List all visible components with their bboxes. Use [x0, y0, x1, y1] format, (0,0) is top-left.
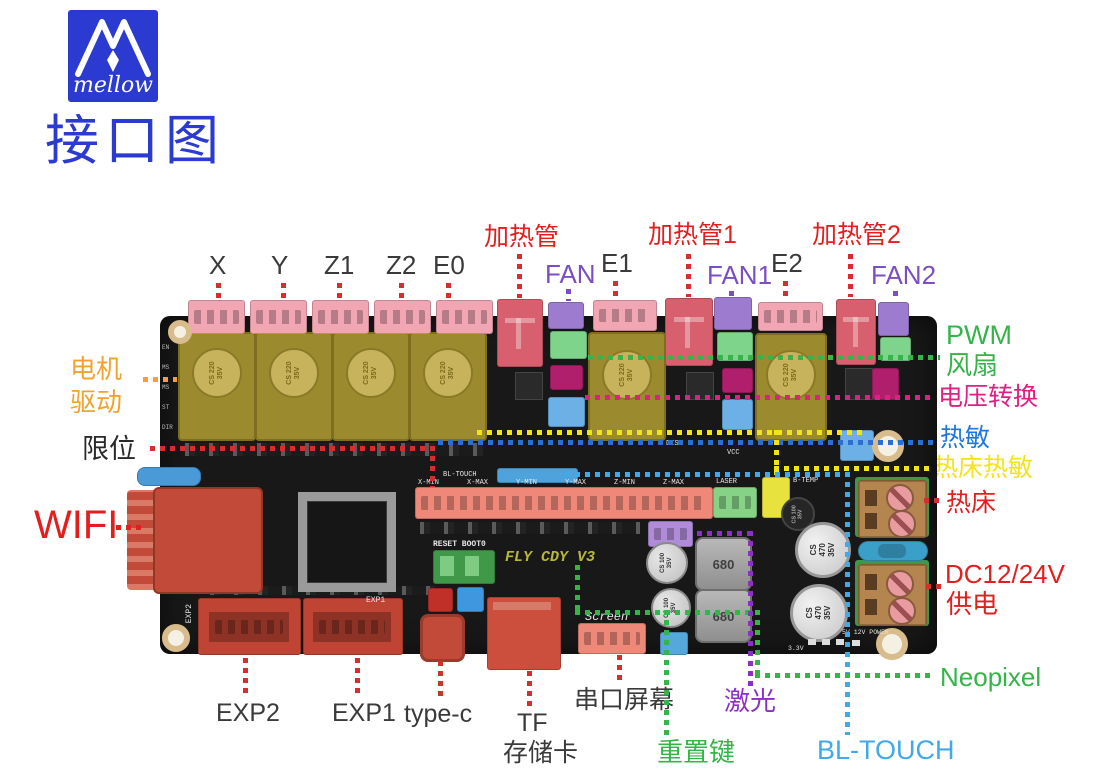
exp2-silk: EXP2 [186, 604, 194, 623]
voltage-connector [550, 365, 583, 390]
laser-pwm-connector [713, 487, 757, 518]
leader-typec [438, 661, 443, 699]
leader-z2 [399, 283, 404, 300]
mellow-logo-word: mellow [73, 73, 153, 98]
reset-boot-buttons [433, 550, 495, 584]
leader-pwm-fan [588, 355, 940, 360]
motor-connector-z2 [374, 300, 431, 334]
mounting-hole [162, 624, 190, 652]
driver-capacitor: CS 220 35V [346, 348, 396, 398]
screen-connector [578, 623, 646, 654]
voltage1-connector [722, 368, 753, 393]
fuse-body [878, 544, 906, 558]
label-bed-thermistor: 热床热敏 [933, 456, 1033, 481]
status-led [822, 639, 830, 645]
leader-thermistor [438, 440, 935, 445]
thermistor-connector [548, 397, 585, 427]
terminal-slot [865, 574, 877, 590]
label-bed: 热床 [946, 491, 996, 516]
mellow-logo-icon: mellow [68, 10, 158, 102]
label-motor-driver: 驱动 [70, 389, 122, 415]
motor-connector-z1 [312, 300, 369, 334]
leader-fan1 [729, 291, 734, 300]
label-tf-card: 存储卡 [503, 741, 578, 766]
exp2-connector [198, 598, 301, 655]
btemp-silk: B-TEMP [793, 478, 818, 485]
interface-diagram: mellow 接口图 CS 220 35V CS 220 35V CS 220 … [0, 0, 1096, 777]
label-thermistor: 热敏 [940, 426, 990, 451]
heater-connector [497, 299, 543, 367]
smd-ic [515, 372, 543, 400]
boot0-button [465, 556, 479, 576]
label-z1: Z1 [324, 252, 354, 278]
page-title: 接口图 [45, 114, 225, 168]
endstop-silk: X-MIN [418, 480, 439, 487]
exp2-socket [209, 612, 289, 642]
reset-button [440, 556, 454, 576]
leader-serial-screen [617, 655, 622, 685]
terminal-screw [886, 570, 914, 598]
mellow-logo: mellow [68, 10, 158, 102]
label-tf-card: TF [517, 711, 548, 736]
smd-row [420, 522, 640, 534]
leader-neopixel [755, 673, 935, 678]
motor-connector-y [250, 300, 307, 334]
jumper [457, 587, 484, 612]
pin-silk: MS [162, 365, 169, 371]
leader-endstop [150, 446, 434, 451]
leader-neopixel [755, 610, 760, 677]
leader-dc [926, 584, 944, 589]
label-heater2: 加热管2 [812, 223, 901, 248]
endstop-silk: X-MAX [467, 480, 488, 487]
leader-heater [517, 254, 522, 298]
endstop-silk: Z-MAX [663, 480, 684, 487]
leader-wifi [116, 525, 142, 530]
leader-reset-key [664, 610, 669, 737]
label-fan1: FAN1 [707, 262, 772, 288]
pin-silk: ST [162, 405, 169, 411]
leader-voltage [585, 395, 933, 400]
leader-laser [748, 531, 753, 687]
label-heater: 加热管 [484, 225, 559, 250]
fan-connector [548, 302, 584, 329]
label-wifi: WIFI [34, 505, 118, 545]
leader-fan2 [893, 291, 898, 300]
leader-z1 [337, 283, 342, 300]
leader-laser [697, 531, 752, 536]
motor-connector-e0 [436, 300, 493, 334]
driver-capacitor: CS 220 35V [269, 348, 319, 398]
terminal-screw [888, 510, 916, 538]
leader-motor-driver [143, 377, 177, 382]
thermistor1-connector [722, 399, 753, 430]
status-led [836, 639, 844, 645]
label-heater1: 加热管1 [648, 223, 737, 248]
label-motor-driver: 电机 [70, 356, 122, 382]
leader-endstop [430, 446, 435, 487]
mounting-hole [168, 320, 192, 344]
capacitor-100uf: CS 100 35V [646, 542, 688, 584]
capacitor-470uf: CS 470 35V [795, 522, 851, 578]
label-laser: 激光 [724, 688, 776, 714]
fuse-component [428, 588, 453, 612]
label-endstop: 限位 [82, 436, 136, 463]
label-neopixel: Neopixel [940, 664, 1041, 690]
leader-exp1 [355, 658, 360, 698]
pin-silk: EN [162, 345, 169, 351]
label-y: Y [271, 252, 288, 278]
label-x: X [209, 252, 226, 278]
reset-boot-silk: RESET BOOT0 [433, 541, 486, 549]
inductor-680: 680 [695, 537, 752, 591]
label-e2: E2 [771, 250, 803, 276]
fan1-connector [714, 297, 752, 330]
motor-connector-x [188, 300, 245, 334]
type-c-port [420, 614, 465, 662]
label-voltage-conv: 电压转换 [938, 385, 1038, 410]
terminal-slot [865, 490, 877, 506]
label-fan: FAN [545, 261, 596, 287]
mounting-hole [872, 430, 904, 462]
leader-tf [527, 671, 532, 707]
label-fan2: FAN2 [871, 262, 936, 288]
leader-heater1 [686, 254, 691, 297]
mcu-die [307, 501, 387, 583]
leader-bltouch [845, 472, 850, 735]
terminal-slot [865, 513, 877, 529]
label-dc-power: DC12/24V [945, 561, 1065, 587]
terminal-screw [888, 597, 916, 625]
inductor-680: 680 [695, 589, 752, 643]
fuse-holder [858, 541, 928, 561]
status-led [852, 640, 860, 646]
leader-fan [566, 289, 571, 301]
pin-silk: MS [162, 385, 169, 391]
bltouch-silk: BL-TOUCH [443, 472, 477, 479]
leader-bed-thermistor [774, 466, 932, 471]
v33-silk: 3.3V [788, 646, 804, 653]
label-exp1: EXP1 [332, 701, 396, 726]
vcc-silk: VCC [727, 450, 740, 457]
pin-silk: DIR [162, 425, 173, 431]
leader-x [216, 283, 221, 300]
exp1-connector [303, 598, 403, 655]
mcu-chip [298, 492, 396, 592]
endstop-silk: Z-MIN [614, 480, 635, 487]
endstop-silk: Y-MAX [565, 480, 586, 487]
terminal-screw [886, 484, 914, 512]
fan2-connector [878, 302, 909, 336]
driver-capacitor: CS 220 35V [192, 348, 242, 398]
laser-silk: LASER [716, 479, 737, 486]
pwm-fan-connector [550, 331, 587, 359]
terminal-slot [865, 599, 877, 615]
capacitor-470uf: CS 470 35V [790, 584, 848, 642]
tf-slot-opening [493, 602, 551, 610]
label-dc-power: 供电 [946, 591, 998, 617]
leader-neopixel [575, 565, 580, 613]
wifi-module [153, 487, 263, 594]
motor-connector-e2 [758, 302, 823, 331]
leader-exp2 [243, 658, 248, 698]
leader-e0 [446, 283, 451, 300]
label-e1: E1 [601, 250, 633, 276]
label-z2: Z2 [386, 252, 416, 278]
label-bltouch: BL-TOUCH [817, 737, 955, 764]
leader-e2 [783, 281, 788, 300]
leader-bltouch [565, 472, 849, 477]
label-pwm-fan: PWM [946, 322, 1012, 349]
label-e0: E0 [433, 252, 465, 278]
leader-e1 [613, 281, 618, 300]
status-led [808, 639, 816, 645]
tf-card-slot [487, 597, 561, 670]
label-typec: type-c [404, 702, 472, 727]
limit-switch-connector [137, 467, 201, 486]
leader-y [281, 283, 286, 300]
leader-heater2 [848, 254, 853, 297]
model-silk: FLY CDY V3 [505, 550, 595, 565]
wifi-antenna [127, 490, 155, 590]
exp1-socket [313, 612, 391, 642]
endstop-silk: Y-MIN [516, 480, 537, 487]
leader-bed-thermistor [477, 430, 866, 435]
driver-capacitor: CS 220 35V [423, 348, 473, 398]
endstop-connector-row [415, 487, 713, 519]
label-reset-key: 重置键 [657, 739, 735, 765]
exp1-silk: EXP1 [366, 597, 385, 605]
label-exp2: EXP2 [216, 701, 280, 726]
motor-connector-e1 [593, 300, 657, 331]
capacitor-100uf: CS 100 35V [651, 588, 691, 628]
label-serial-screen: 串口屏幕 [574, 688, 674, 713]
label-pwm-fan: 风扇 [946, 352, 998, 378]
leader-bed [924, 498, 944, 503]
